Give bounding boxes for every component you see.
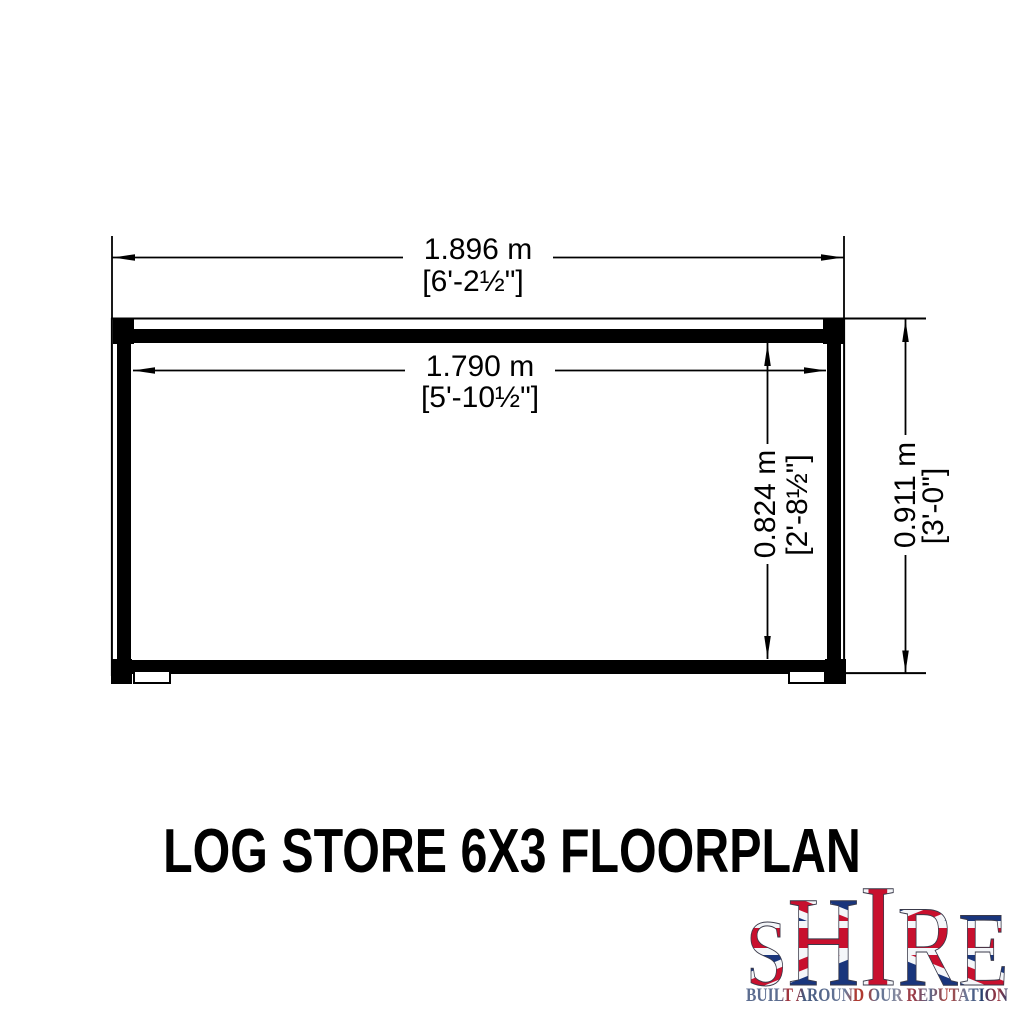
arrow-icon xyxy=(804,367,826,374)
post-bottom-left xyxy=(111,659,132,684)
logo-tagline: BUILT AROUND OUR REPUTATION xyxy=(746,985,1008,1006)
arrow-icon xyxy=(764,636,771,658)
wall-left xyxy=(117,320,131,674)
post-bottom-right xyxy=(825,659,846,684)
dim-inner-depth-imperial: [2'-8½"] xyxy=(781,445,815,565)
floorplan-page: S H I R E BUILT AROUND OUR REPUTATION 1.… xyxy=(0,0,1024,1024)
wall-bottom xyxy=(117,660,841,674)
arrow-icon xyxy=(902,651,909,673)
dim-outer-depth-imperial: [3'-0"] xyxy=(917,446,951,566)
foot-right xyxy=(789,671,825,683)
dim-inner-width-imperial: [5'-10½"] xyxy=(395,381,565,415)
dim-inner-depth-metric: 0.824 m xyxy=(749,444,783,564)
foot-left xyxy=(134,671,170,683)
post-top-right xyxy=(823,319,844,344)
arrow-icon xyxy=(133,367,155,374)
page-title: LOG STORE 6X3 FLOORPLAN xyxy=(113,821,912,883)
arrow-icon xyxy=(821,254,843,261)
wall-right xyxy=(827,320,841,674)
dim-inner-width-metric: 1.790 m xyxy=(405,350,555,384)
arrow-icon xyxy=(764,344,771,366)
arrow-icon xyxy=(113,254,135,261)
arrow-icon xyxy=(902,320,909,342)
dim-outer-width-imperial: [6'-2½"] xyxy=(398,265,548,299)
wall-top xyxy=(116,329,841,343)
dim-outer-width-metric: 1.896 m xyxy=(403,233,553,267)
post-top-left xyxy=(113,319,134,344)
